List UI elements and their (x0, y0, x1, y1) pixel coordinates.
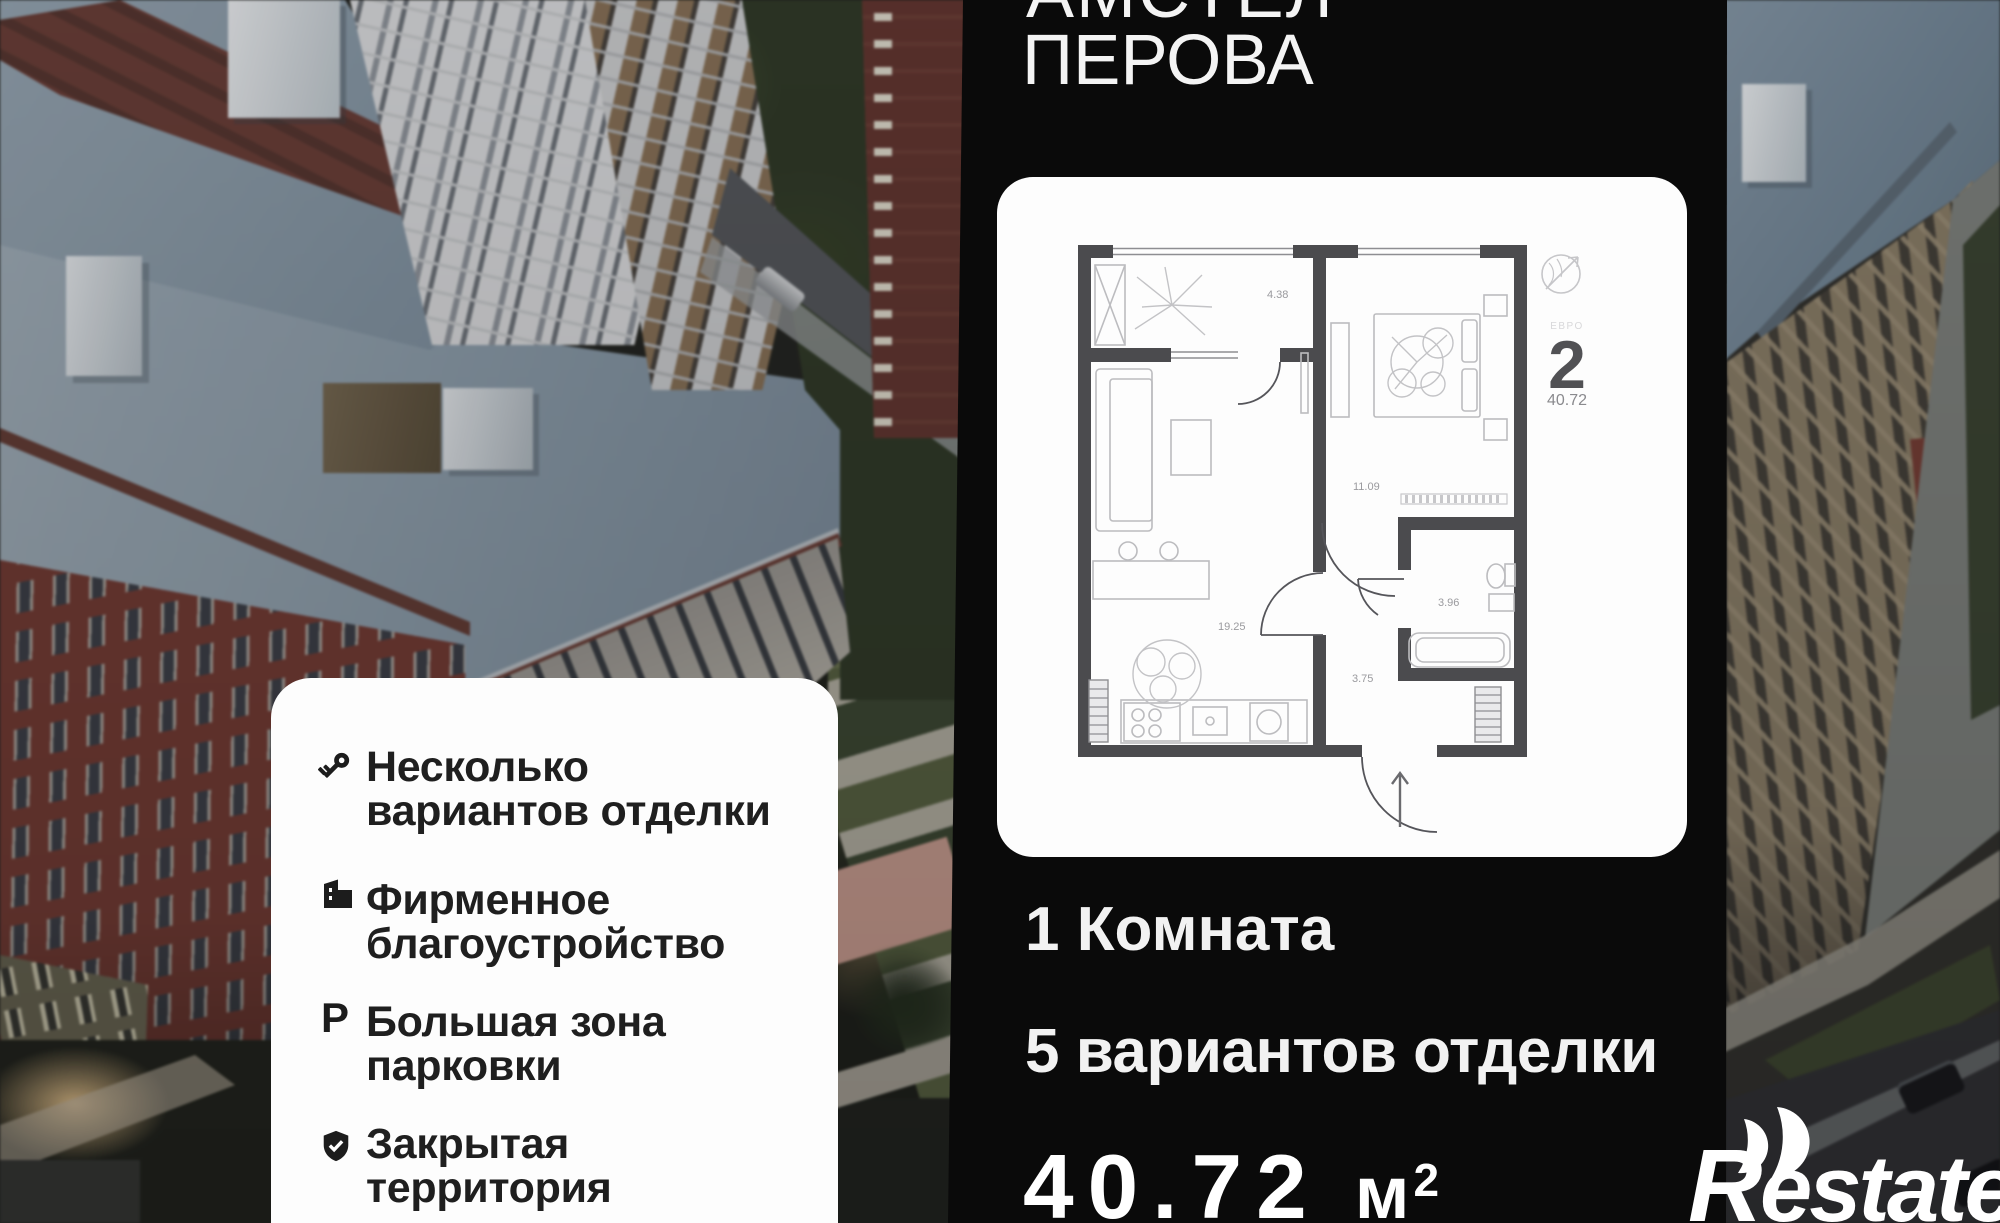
svg-text:3.75: 3.75 (1352, 673, 1373, 685)
svg-text:3.96: 3.96 (1438, 597, 1459, 609)
svg-text:19.25: 19.25 (1218, 621, 1246, 633)
svg-text:4.38: 4.38 (1267, 289, 1288, 301)
svg-text:ЕВРО: ЕВРО (1550, 321, 1584, 332)
svg-text:estate: estate (1760, 1136, 2000, 1223)
svg-text:11.09: 11.09 (1353, 481, 1380, 493)
svg-text:R: R (1688, 1128, 1762, 1223)
svg-text:40.72: 40.72 (1547, 392, 1587, 409)
